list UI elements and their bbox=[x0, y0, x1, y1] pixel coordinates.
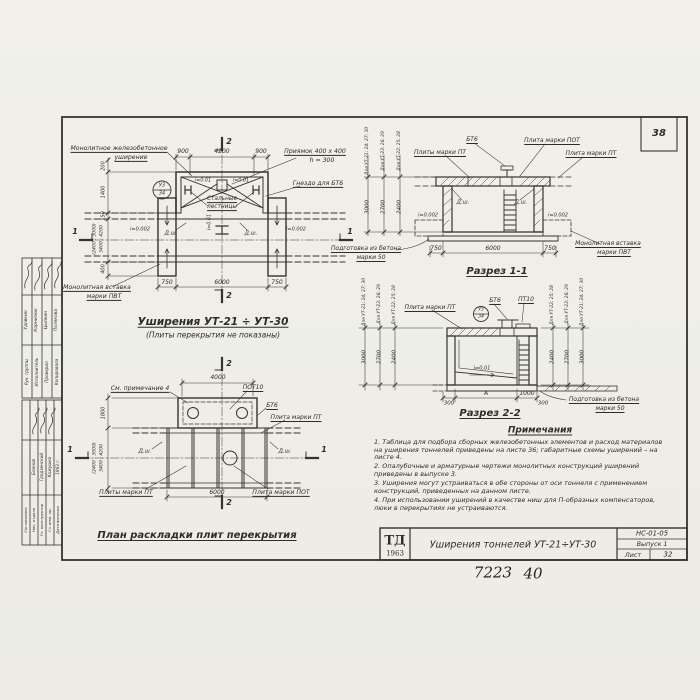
note-item-4: 4. При использовании уширений в качестве… bbox=[374, 497, 665, 512]
slab-dim-top: 4000 bbox=[210, 375, 225, 381]
plan-joint-label-right: Д.ш. bbox=[245, 231, 258, 237]
s11-group-label-b: Для УТ-23; 26; 29 bbox=[382, 131, 386, 171]
stamp-upper-name-4: Полякова bbox=[55, 309, 59, 331]
stamp-upper-role-3: Проверил bbox=[45, 361, 49, 382]
s11-height-b: 2700 bbox=[381, 200, 387, 214]
s11-height-a: 3000 bbox=[365, 200, 371, 214]
stamp-lower-name-2: Блинов bbox=[32, 459, 36, 475]
note-item-2: 2. Опалубочные и арматурные чертежи моно… bbox=[374, 463, 665, 478]
stamp-upper-name-3: Цыпкин bbox=[45, 311, 49, 329]
title-block-title: Уширения тоннелей УТ-21÷УТ-30 bbox=[430, 540, 597, 550]
plan-callout-pit-line2: h = 300 bbox=[310, 158, 335, 164]
s22-dim-1: 300 bbox=[444, 401, 455, 407]
stamp-lower-name-5: 1963 г. bbox=[56, 459, 60, 475]
title-block-sheet-label: Лист bbox=[625, 552, 641, 558]
plan-subtitle: (Плиты перекрытия не показаны) bbox=[146, 331, 280, 339]
s22-group-left-c: Для УТ-22; 25; 28 bbox=[393, 285, 397, 325]
s11-group-label-a: Для УТ-21; 24; 27; 30 bbox=[366, 127, 370, 175]
s22-prep-line2: марки 50 bbox=[595, 406, 624, 412]
plan-detail-bubble-bottom: 34 bbox=[159, 192, 165, 197]
s11-title: Разрез 1-1 bbox=[466, 267, 527, 277]
title-block-code: НС-01-05 bbox=[636, 531, 668, 538]
plan-callout-insert-line1: Монолитная вставка bbox=[63, 285, 131, 291]
slab-callout-plate-pot: Плита марки ПОТ bbox=[252, 490, 309, 496]
stamp-upper-name-1: Удовкин bbox=[25, 310, 29, 329]
s11-callout-plate-pot: Плита марки ПОТ bbox=[524, 138, 580, 144]
plan-dim-bottom-left: 750 bbox=[161, 280, 172, 286]
s22-prep-line1: Подготовка из бетона bbox=[569, 397, 639, 403]
slab-joint-right: Д.ш. bbox=[279, 449, 292, 455]
s22-callout-pt10: ПТ10 bbox=[518, 297, 534, 303]
plan-slope-0002-left: i=0.002 bbox=[130, 228, 150, 233]
stamp-lower-name-3: Гродзенский bbox=[40, 453, 44, 481]
s22-height-right-c: 2400 bbox=[550, 350, 556, 364]
slab-section-mark-2-bottom: 2 bbox=[226, 499, 232, 507]
stamp-lower-role-3: Гл. конструктор bbox=[40, 504, 44, 536]
notes-heading: Примечания bbox=[508, 427, 572, 436]
handwritten-number-2: 40 bbox=[523, 567, 542, 582]
s11-slope-right: i=0.002 bbox=[548, 214, 568, 219]
stamp-grid bbox=[22, 258, 62, 545]
corner-number: 38 bbox=[652, 129, 666, 139]
s22-bubble-top: У3 bbox=[478, 309, 484, 314]
stamp-lower-role-5: Дата выпуска bbox=[56, 506, 60, 534]
plan-title: Уширения УТ-21 ÷ УТ-30 bbox=[138, 317, 289, 328]
plan-dim-left-5: 400 bbox=[102, 264, 107, 274]
slab-dim-left-big-a: (2400 ; 3000) bbox=[94, 442, 99, 473]
s22-height-right-a: 3000 bbox=[580, 350, 586, 364]
drawing-linework bbox=[0, 0, 700, 700]
slab-callout-note: См. примечание 4 bbox=[111, 386, 170, 392]
s11-prep-line2: марки 50 bbox=[356, 255, 385, 261]
slab-callout-plate-pt: Плита марки ПТ bbox=[271, 415, 322, 421]
s22-height-left-b: 2700 bbox=[377, 350, 383, 364]
slab-dim-bottom: 6000 bbox=[209, 490, 224, 496]
title-block-logo-year: 1963 bbox=[386, 551, 404, 558]
s22-slope-label: i=0.01 bbox=[474, 367, 491, 372]
plan-dim-left-1: 200 bbox=[102, 161, 107, 171]
title-block-logo: ТД bbox=[384, 535, 405, 548]
slab-plan-title: План раскладки плит перекрытия bbox=[97, 531, 296, 541]
s11-dim-bottom-mid: 6000 bbox=[485, 246, 500, 252]
s22-group-left-a: Для УТ-21; 24; 27; 30 bbox=[363, 278, 367, 326]
slab-joint-left: Д.ш. bbox=[139, 449, 152, 455]
plan-callout-socket: Гнездо для БТ6 bbox=[293, 181, 344, 187]
plan-dim-left-4a: (2400 ; 3000) bbox=[94, 223, 99, 254]
plan-detail-bubble-top: У3 bbox=[159, 184, 165, 189]
s22-height-left-c: 2400 bbox=[392, 350, 398, 364]
s11-callout-bt6: БТ6 bbox=[466, 137, 478, 143]
s11-callout-plate-pt: Плита марки ПТ bbox=[566, 151, 617, 157]
s22-group-right-c: Для УТ-22; 25; 28 bbox=[551, 285, 555, 325]
stamp-upper-role-1: Рук. группы bbox=[25, 359, 29, 385]
s11-group-label-c: Для УТ-22; 25; 28 bbox=[398, 131, 402, 171]
s11-dim-bottom-left: 750 bbox=[430, 246, 441, 252]
s22-height-left-a: 3000 bbox=[362, 350, 368, 364]
slab-callout-bt6: БТ6 bbox=[266, 403, 278, 409]
plan-callout-widening-line1: Монолитное железобетонное bbox=[70, 146, 167, 152]
s22-bubble-bottom: 34 bbox=[478, 316, 484, 321]
s22-height-right-b: 2700 bbox=[565, 350, 571, 364]
plan-callout-pit-line1: Приямок 400 x 400 bbox=[284, 149, 346, 155]
plan-dim-top-right: 900 bbox=[255, 149, 266, 155]
plan-callout-steel-line1: Стальные bbox=[207, 197, 237, 203]
plan-section-mark-1-left: 1 bbox=[72, 228, 78, 236]
slab-dim-left: 1800 bbox=[102, 407, 107, 420]
slab-callout-plates-pt: Плиты марки ПТ bbox=[99, 490, 153, 496]
plan-section-mark-2-bottom: 2 bbox=[226, 292, 232, 300]
plan-section-mark-2-top: 2 bbox=[226, 138, 232, 146]
stamp-upper-name-2: Корнилюк bbox=[35, 308, 39, 331]
slab-dim-left-big-b: 3400 ; 4200 bbox=[101, 444, 106, 472]
plan-slope-label-left: i=0.01 bbox=[195, 180, 211, 185]
note-item-1: 1. Таблица для подбора сборных железобет… bbox=[374, 439, 665, 462]
plan-slope-0002-right: i=0.002 bbox=[286, 228, 306, 233]
s22-group-right-a: Для УТ-21; 24; 27; 30 bbox=[581, 278, 585, 326]
plan-dim-top-left: 900 bbox=[177, 149, 188, 155]
s11-slope-left: i=0.002 bbox=[418, 214, 438, 219]
plan-section-mark-1-right: 1 bbox=[347, 228, 353, 236]
plan-slope-label-center: i=0.01 bbox=[209, 214, 214, 230]
s22-title: Разрез 2-2 bbox=[459, 409, 520, 419]
plan-slope-label-right: i=0.01 bbox=[233, 180, 249, 185]
slab-callout-pot10: ПОТ10 bbox=[243, 385, 264, 391]
slab-section-mark-2-top: 2 bbox=[226, 360, 232, 368]
plan-callout-insert-line2: марки ПВТ bbox=[87, 294, 122, 300]
s11-insert-line1: Монолитная вставка bbox=[575, 241, 641, 247]
stamp-upper-role-4: Копировала bbox=[55, 359, 59, 386]
s22-dim-3: 1000 bbox=[519, 391, 534, 397]
s22-callout-plate-pt: Плита марки ПТ bbox=[405, 305, 456, 311]
plan-joint-label-left: Д.ш. bbox=[165, 231, 178, 237]
slab-plan-linework bbox=[76, 358, 318, 508]
s22-group-left-b: Для УТ-23; 26; 29 bbox=[378, 284, 382, 324]
slab-section-mark-1-left: 1 bbox=[67, 446, 73, 454]
plan-dim-top-mid: 4200 bbox=[214, 149, 229, 155]
plan-dim-left-2: 1400 bbox=[102, 186, 107, 199]
drawing-sheet: 38 Монолитное железобетонное уширение Пр… bbox=[0, 0, 700, 700]
plan-dim-left-3: 150 bbox=[102, 211, 107, 221]
plan-dim-bottom-right: 750 bbox=[271, 280, 282, 286]
s22-group-right-b: Для УТ-23; 26; 29 bbox=[566, 284, 570, 324]
s22-dim-4: 300 bbox=[538, 401, 549, 407]
notes-list: 1. Таблица для подбора сборных железобет… bbox=[374, 439, 665, 514]
plan-dim-left-4b: 3400 ; 4200 bbox=[101, 225, 106, 253]
slab-section-mark-1-right: 1 bbox=[321, 446, 327, 454]
stamp-upper-role-2: Исполнитель bbox=[35, 357, 39, 386]
s11-joint-right: Д.ш. bbox=[515, 200, 528, 206]
plan-callout-widening-line2: уширение bbox=[115, 155, 148, 161]
handwritten-number-1: 7223 bbox=[474, 566, 512, 581]
s11-insert-line2: марки ПВТ bbox=[597, 250, 631, 256]
s11-prep-line1: Подготовка из бетона bbox=[331, 246, 401, 252]
title-block-issue: Выпуск 1 bbox=[637, 541, 668, 547]
plan-dim-bottom-mid: 6000 bbox=[214, 280, 229, 286]
s11-height-c: 2400 bbox=[397, 200, 403, 214]
note-item-3: 3. Уширения могут устраиваться в обе сто… bbox=[374, 480, 665, 495]
s22-callout-bt6: БТ6 bbox=[489, 298, 501, 304]
s11-callout-plates-pt: Плиты марки ПТ bbox=[414, 150, 466, 156]
plan-callout-steel-line2: лестницы bbox=[207, 205, 237, 211]
stamp-lower-role-2: Нач. отдела bbox=[32, 508, 36, 532]
stamp-lower-role-1: Согласовано bbox=[24, 507, 28, 533]
s11-joint-left: Д.ш. bbox=[457, 200, 470, 206]
title-block-sheet-number: 32 bbox=[664, 552, 673, 559]
s11-dim-bottom-right: 750 bbox=[544, 246, 555, 252]
stamp-lower-name-4: Кожушко bbox=[48, 457, 52, 478]
s22-dim-2: А bbox=[484, 391, 488, 397]
stamp-lower-role-4: Гл. инж. пр. bbox=[48, 508, 52, 532]
